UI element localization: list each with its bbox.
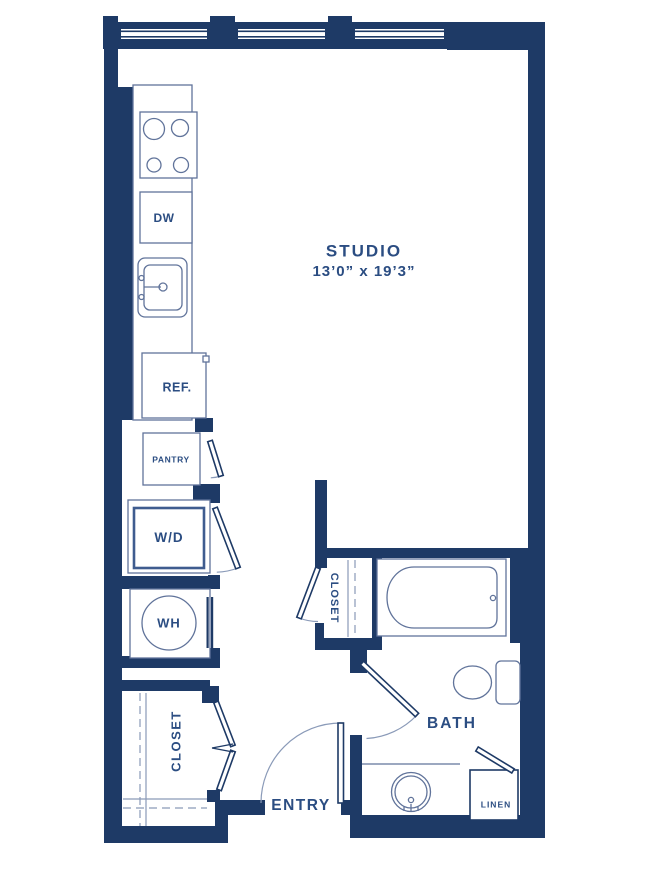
window-glazing-line xyxy=(355,31,444,33)
toilet xyxy=(454,661,521,704)
stove xyxy=(140,112,197,178)
entry-door-arc xyxy=(261,723,341,803)
faucet-icon xyxy=(408,797,413,802)
washer-dryer-door xyxy=(213,507,241,569)
entry-label: ENTRY xyxy=(271,797,330,814)
window-end-cap xyxy=(207,29,210,39)
vanity-sink xyxy=(362,764,460,812)
window-end-cap xyxy=(352,29,355,39)
wall-segment xyxy=(104,826,228,843)
window-inner-band xyxy=(352,39,447,49)
bath-closet-shelving xyxy=(348,560,355,637)
wall-segment xyxy=(228,800,265,815)
window-outer-band xyxy=(352,22,447,29)
toilet-bowl xyxy=(454,666,492,699)
wall-segment xyxy=(315,548,545,558)
linen-closet-outline xyxy=(470,770,518,820)
linen-label: LINEN xyxy=(481,799,512,809)
wall-segment xyxy=(315,638,382,650)
window-glazing-line xyxy=(121,31,207,33)
bath-door-arc xyxy=(367,715,418,739)
wall-segment xyxy=(528,50,545,558)
water-heater-door xyxy=(211,597,213,648)
utility-closet-bifold-door xyxy=(214,701,235,747)
door-swing-arcs xyxy=(211,476,417,803)
studio-dimensions: 13’0” x 19’3” xyxy=(312,263,415,280)
pantry-label: PANTRY xyxy=(152,454,190,464)
window-end-cap xyxy=(118,29,121,39)
window xyxy=(118,22,210,49)
washer-dryer-door-arc xyxy=(217,568,238,572)
window-outer-band xyxy=(235,22,328,29)
kitchen-sink xyxy=(138,258,187,317)
pantry-door xyxy=(208,440,224,476)
entry-door xyxy=(338,723,344,803)
bath-closet-label: CLOSET xyxy=(328,573,340,624)
wall-segment xyxy=(103,16,118,49)
window-inner-band xyxy=(235,39,328,49)
linen-door xyxy=(476,747,515,773)
water-heater-door xyxy=(207,597,209,648)
wall-segment xyxy=(510,558,545,643)
wall-segment xyxy=(104,680,210,691)
utility-closet-shelving xyxy=(123,693,207,826)
window-glazing-line xyxy=(355,36,444,38)
refrigerator-hinge xyxy=(203,356,209,362)
window-glazing-line xyxy=(238,31,325,33)
utility-closet-bifold-door xyxy=(217,750,235,791)
linen-closet xyxy=(470,770,518,820)
dishwasher-label: DW xyxy=(154,211,175,225)
washer-dryer-label: W/D xyxy=(154,530,183,545)
window xyxy=(352,22,447,49)
wall-segment xyxy=(210,16,235,49)
bath-closet-door xyxy=(297,567,320,619)
toilet-tank xyxy=(496,661,520,704)
wall-segment xyxy=(315,558,327,568)
window-inner-band xyxy=(118,39,210,49)
window-glazing-line xyxy=(121,36,207,38)
bathtub xyxy=(377,559,506,636)
wall-segment xyxy=(520,643,545,838)
wall-segment xyxy=(315,623,324,638)
window-end-cap xyxy=(444,29,447,39)
floor-plan-page: STUDIO 13’0” x 19’3” DW REF. PANTRY W/D … xyxy=(0,0,650,887)
utility-closet-label: CLOSET xyxy=(168,710,183,772)
bifold-fold-mark xyxy=(212,748,233,752)
wall-segment xyxy=(195,418,213,432)
wall-segment xyxy=(104,420,122,843)
refrigerator-label: REF. xyxy=(162,380,191,394)
wall-segment xyxy=(447,22,545,50)
window-outer-band xyxy=(118,22,210,29)
wall-segment xyxy=(104,576,220,589)
floor-plan-canvas: STUDIO 13’0” x 19’3” DW REF. PANTRY W/D … xyxy=(0,0,650,887)
wall-segment xyxy=(104,87,133,420)
wall-segment xyxy=(202,686,219,703)
window-end-cap xyxy=(235,29,238,39)
bathtub-outline xyxy=(377,559,506,636)
water-heater-label: WH xyxy=(157,615,181,630)
window xyxy=(235,22,328,49)
bath-door xyxy=(360,661,418,717)
bath-label: BATH xyxy=(427,715,477,732)
studio-label: STUDIO xyxy=(326,241,402,260)
wall-segment xyxy=(104,47,118,87)
wall-segment xyxy=(315,480,327,548)
wall-segment xyxy=(328,16,352,49)
window-end-cap xyxy=(325,29,328,39)
window-glazing-line xyxy=(238,36,325,38)
wall-segment xyxy=(215,800,228,843)
